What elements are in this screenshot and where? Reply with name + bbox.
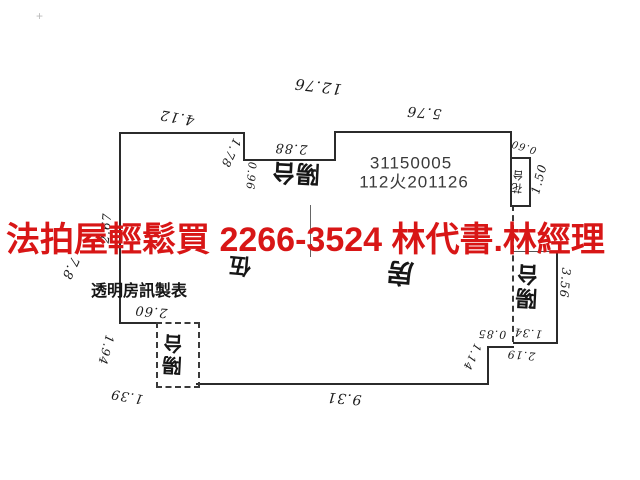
dim-0-60: 0.60 [510,137,538,154]
dim-0-96: 0.96 [244,161,257,190]
wall-step-right [487,346,489,385]
dim-9-31: 9.31 [326,389,362,406]
dim-1-94: 1.94 [96,334,116,367]
scanned-floorplan-page: + 12.764.125.762.881.780.960.601.502.677… [0,0,640,480]
dim-4-12: 4.12 [158,107,195,127]
room-label-planter: 花台 [512,168,525,195]
dim-2-88: 2.88 [274,141,308,156]
dim-1-14: 1.14 [461,342,483,372]
wall-bottom [196,383,488,385]
wall-recess-left [243,132,245,161]
room-label-room: 房 [385,257,414,286]
room-label-balcony-left: 陽台 [164,332,186,377]
case-number: 112火201126 [359,174,469,191]
room-label-balcony-top: 陽台 [271,159,320,185]
room-label-balcony-right: 陽台 [517,261,541,310]
dim-1-78: 1.78 [219,137,243,170]
dim-2-19: 2.19 [506,348,535,361]
wall-recess-right [334,131,336,161]
dim-5-76: 5.76 [406,103,442,120]
wall-top-left [119,132,245,134]
dim-1-34: 1.34 [513,326,542,339]
ad-banner: 法拍屋輕鬆買 2266-3524 林代書.林經理 [6,212,640,261]
wall-top-right [334,131,512,133]
dim-1-50: 1.50 [529,163,549,196]
dim-2-60: 2.60 [134,303,168,319]
dim-0-85: 0.85 [478,328,507,340]
wall-step-left [119,322,157,324]
dim-1-39: 1.39 [110,387,145,406]
dim-3-56: 3.56 [558,267,573,299]
wall-balcony-right-bottom [513,342,558,344]
maker-credit: 透明房訊製表 [91,284,187,300]
plan-id-number: 31150005 [370,155,452,172]
dim-12-76: 12.76 [293,76,342,97]
registration-mark: + [36,9,43,23]
